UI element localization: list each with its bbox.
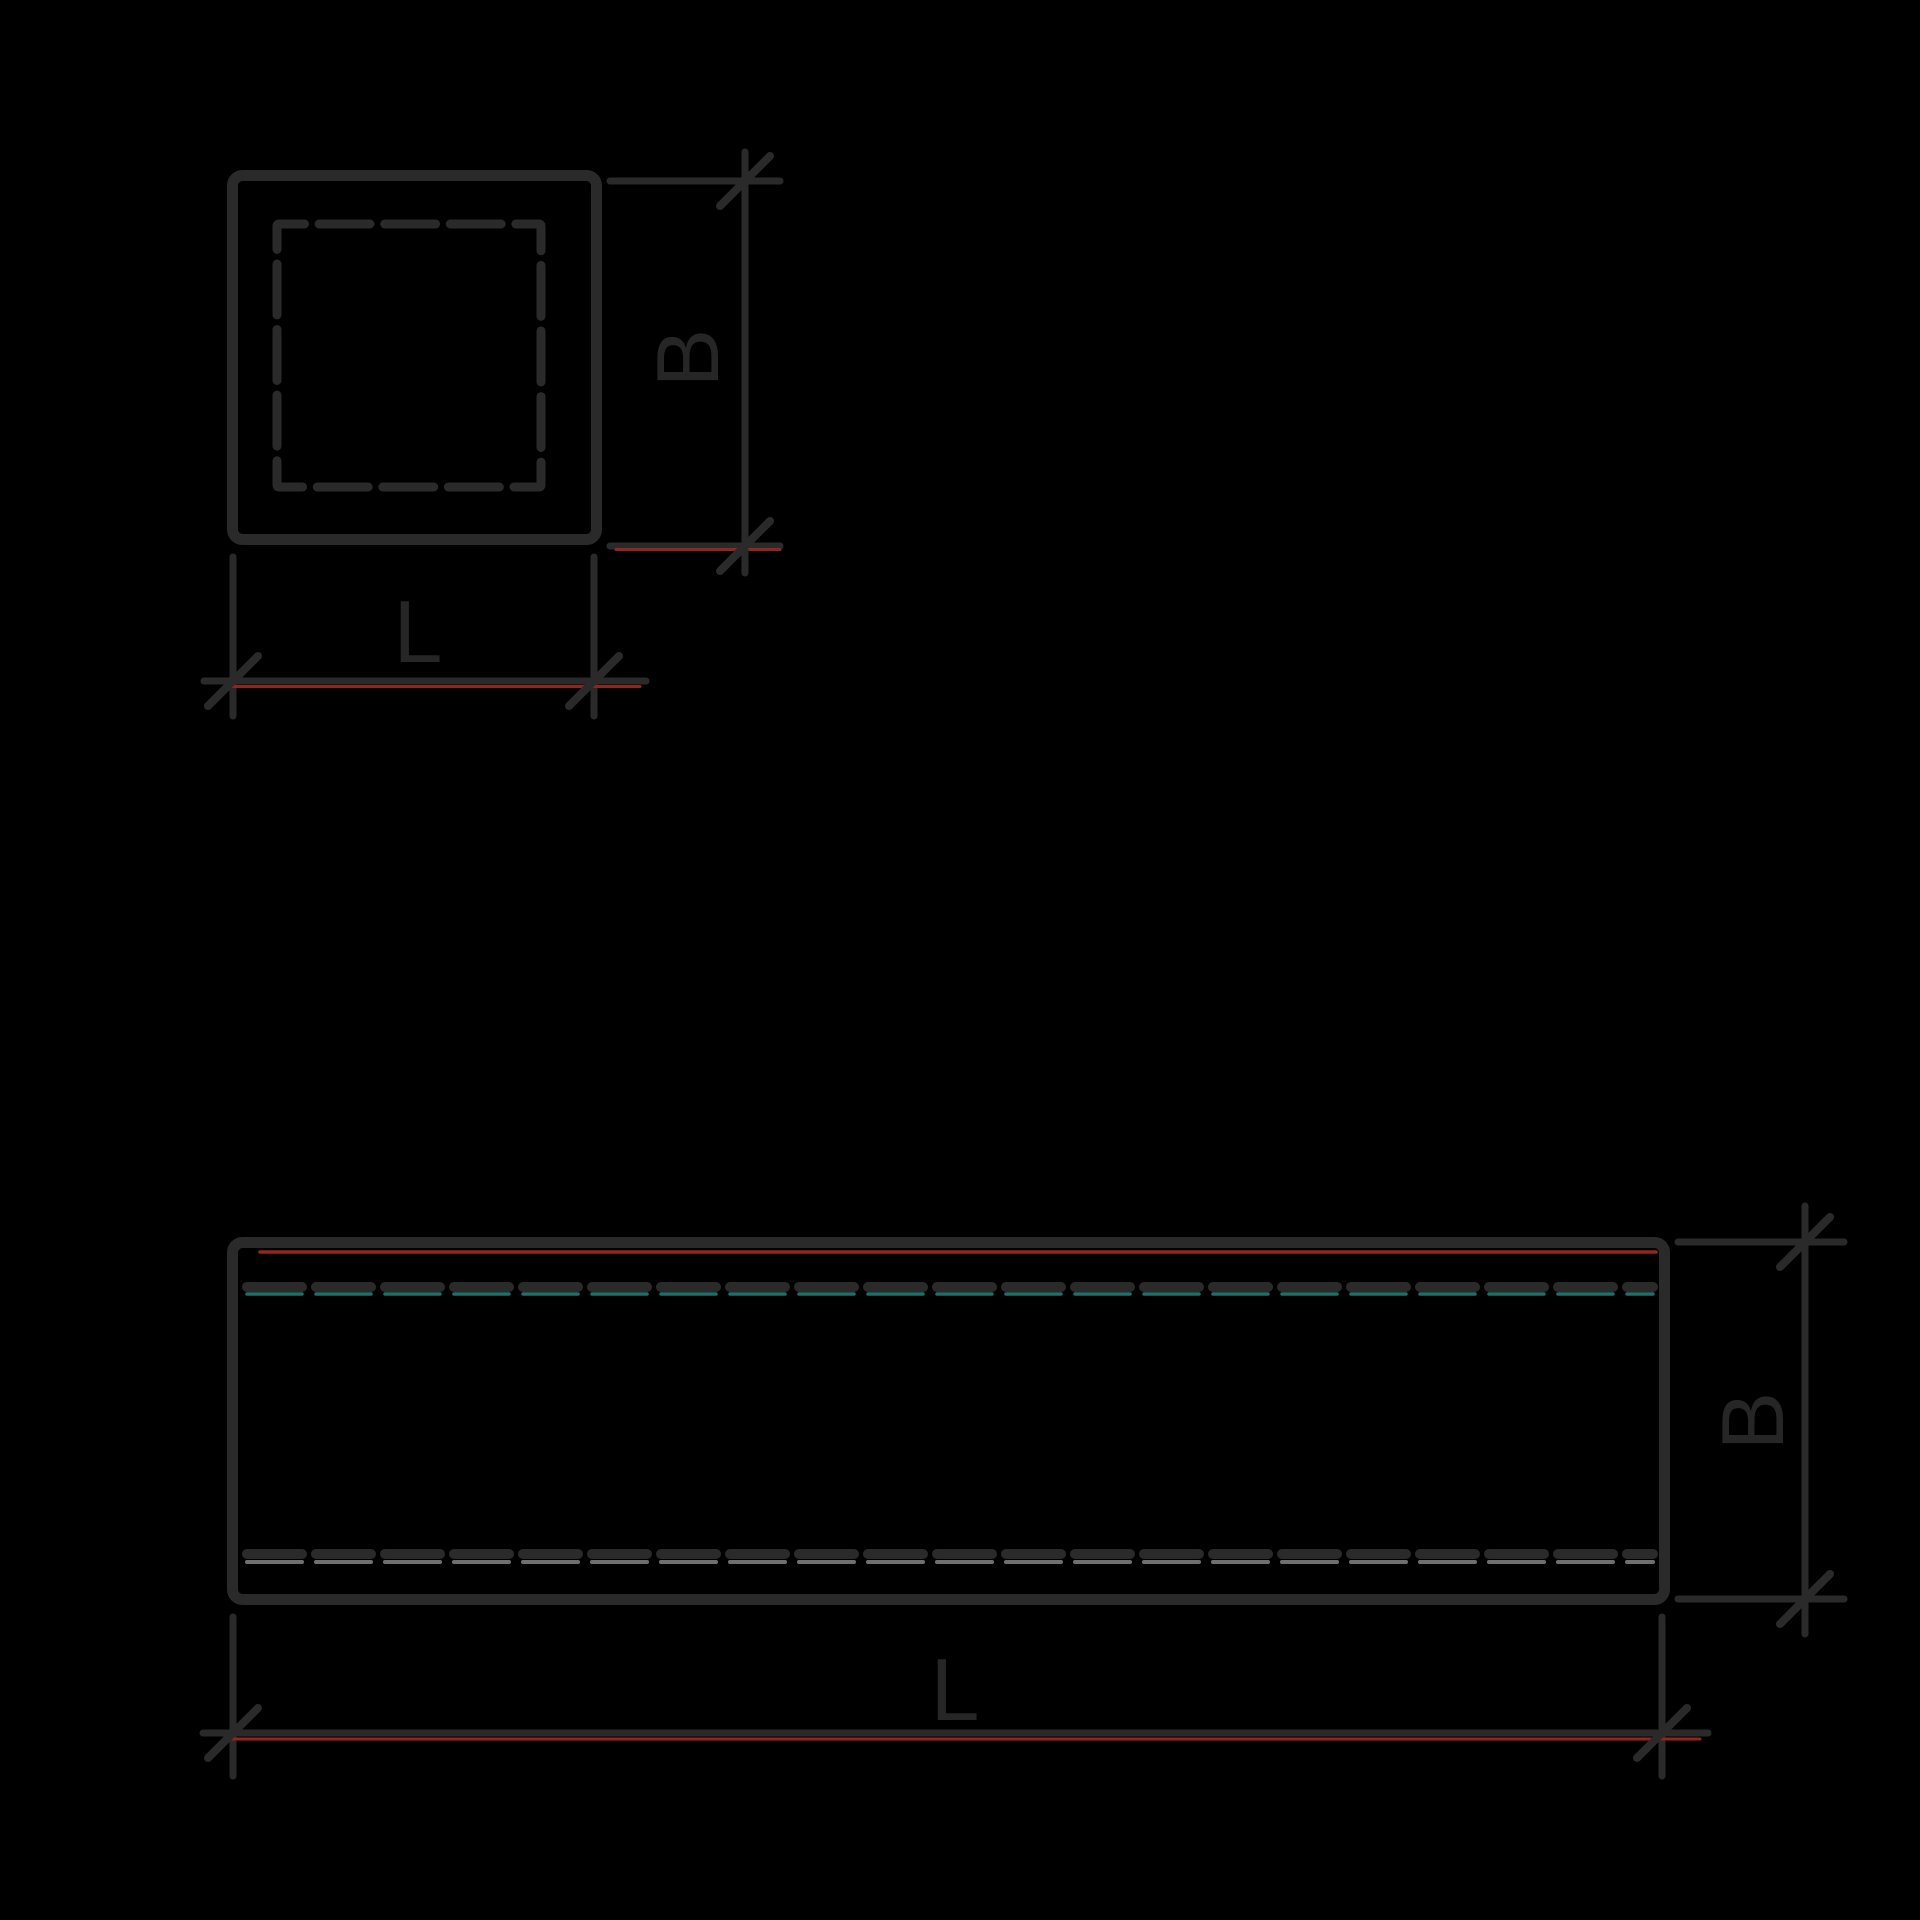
cross-section-inner-wall-dashed <box>277 224 541 487</box>
cross-section-view: B L <box>204 152 780 716</box>
cross-section-dim-L: L <box>204 557 646 716</box>
technical-drawing: B L B <box>0 0 1920 1920</box>
side-view: B L <box>203 1206 1844 1776</box>
dim-label-B: B <box>1703 1392 1802 1451</box>
side-view-dim-L: L <box>203 1617 1708 1776</box>
dim-label-L: L <box>394 582 443 681</box>
side-view-dim-B: B <box>1678 1206 1844 1634</box>
dim-label-L: L <box>931 1640 980 1739</box>
dim-label-B: B <box>638 329 737 388</box>
side-view-outer-wall <box>233 1243 1665 1600</box>
cross-section-dim-B: B <box>610 152 780 573</box>
